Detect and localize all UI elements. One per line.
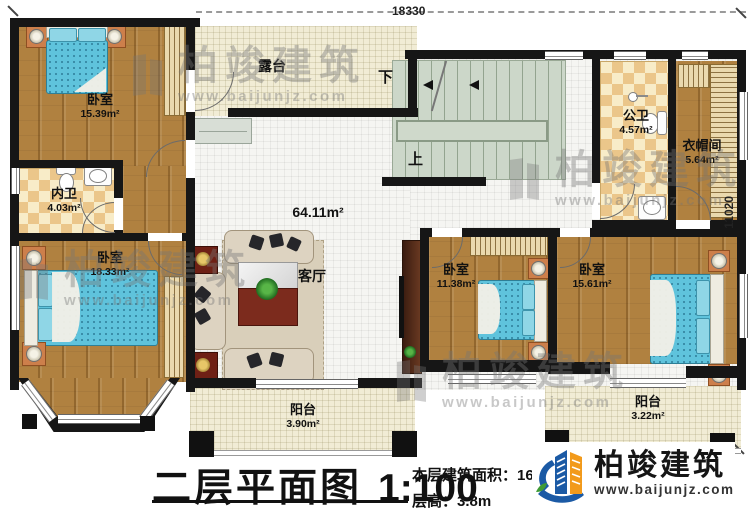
wall: [358, 378, 422, 388]
room-area: 4.57m²: [619, 124, 652, 137]
door-opening: [432, 228, 462, 237]
room-label-bedroom-bl: 卧室 18.33m²: [90, 250, 129, 278]
brand-logo-icon: [532, 442, 588, 504]
window: [682, 51, 708, 60]
room-label-living: 客厅: [298, 268, 326, 285]
room-area: 5.64m²: [682, 154, 721, 167]
room-label-balcony-left: 阳台 3.90m²: [286, 402, 319, 430]
towel-bar: [636, 95, 648, 97]
room-area: 3.90m²: [286, 418, 319, 431]
dimension-tick: [735, 7, 746, 18]
window: [448, 374, 536, 384]
terrace-step: [194, 118, 252, 144]
pillow: [78, 28, 106, 42]
tv-icon: [399, 276, 404, 338]
pillow: [38, 308, 53, 341]
door-opening: [186, 70, 195, 112]
door-opening: [186, 140, 195, 178]
bed-headboard: [534, 280, 547, 342]
plant-icon: [196, 358, 210, 372]
wall: [10, 160, 122, 168]
room-label-bedroom-mid: 卧室 11.38m²: [437, 262, 476, 290]
title-underline: [152, 500, 408, 503]
room-name: 阳台: [631, 394, 664, 410]
bed-headboard: [24, 270, 38, 346]
pillow: [522, 284, 535, 310]
pillow: [38, 274, 53, 307]
room-area: 11.38m²: [437, 278, 476, 291]
door-opening: [148, 233, 182, 241]
door-opening: [676, 220, 710, 229]
balcony-railing: [190, 450, 415, 456]
room-name: 露台: [258, 58, 286, 75]
wall: [548, 228, 557, 368]
lamp-icon: [531, 345, 546, 360]
pillow: [696, 280, 710, 316]
wall: [686, 366, 746, 378]
pillow: [696, 318, 710, 354]
window: [11, 168, 20, 194]
dimension-right: 11020: [722, 196, 736, 229]
lamp-icon: [26, 250, 42, 266]
bay-post-left: [22, 414, 37, 429]
plant-icon: [404, 346, 416, 358]
door-opening: [560, 228, 590, 237]
room-name: 公卫: [619, 108, 652, 124]
wall: [10, 18, 200, 27]
lamp-icon: [29, 29, 44, 44]
plant-icon: [256, 278, 278, 300]
sink-icon: [89, 169, 107, 183]
door-opening: [592, 183, 600, 219]
lamp-icon: [26, 346, 42, 362]
room-area: 4.03m²: [47, 202, 80, 215]
sliding-door: [256, 379, 358, 389]
stair-landing-rail: [396, 120, 548, 142]
window: [739, 92, 748, 160]
wall: [592, 59, 600, 185]
room-area: 15.39m²: [80, 108, 119, 121]
stair-direction-arrow: [418, 80, 433, 90]
window: [545, 51, 583, 60]
pillow: [49, 28, 77, 42]
room-area: 15.61m²: [572, 278, 611, 291]
wardrobe: [470, 234, 548, 256]
roof-dashed-line: [196, 11, 746, 13]
wall: [10, 18, 19, 390]
wardrobe: [164, 26, 186, 116]
toilet-tank: [657, 111, 667, 135]
bed-blanket-fold: [650, 280, 676, 356]
room-label-bedroom-br: 卧室 15.61m²: [572, 262, 611, 290]
window: [11, 246, 20, 330]
room-label-inner-bath: 内卫 4.03m²: [47, 186, 80, 214]
plant-icon: [196, 252, 210, 266]
pillow: [522, 310, 535, 336]
window: [614, 51, 646, 60]
brand-logo: 柏竣建筑 www.baijunjz.com: [532, 442, 735, 504]
lamp-icon: [107, 29, 122, 44]
stair-down-label: 下: [378, 66, 393, 87]
room-name: 卧室: [437, 262, 476, 278]
room-name: 卧室: [90, 250, 129, 266]
column: [392, 431, 417, 457]
room-name: 卧室: [80, 92, 119, 108]
brand-logo-text: 柏竣建筑 www.baijunjz.com: [594, 449, 735, 497]
room-label-bedroom-tl: 卧室 15.39m²: [80, 92, 119, 120]
wall: [420, 228, 429, 368]
stair-direction-arrow: [464, 80, 479, 90]
window: [739, 274, 748, 338]
wall: [382, 177, 486, 186]
room-label-terrace: 露台: [258, 58, 286, 75]
bed-headboard: [710, 274, 724, 364]
bed-blanket-fold: [478, 284, 500, 334]
bay-post-right: [140, 416, 155, 431]
wall: [186, 378, 256, 388]
room-label-public-bath: 公卫 4.57m²: [619, 108, 652, 136]
wardrobe: [164, 276, 184, 378]
plan-title: 二层平面图: [152, 457, 362, 513]
room-area: 3.22m²: [631, 410, 664, 423]
bed-blanket-fold: [52, 272, 80, 342]
room-name: 内卫: [47, 186, 80, 202]
wardrobe: [678, 64, 710, 88]
wall: [408, 50, 417, 116]
stair-up-label: 上: [408, 148, 423, 169]
wall: [228, 108, 418, 117]
room-area: 18.33m²: [90, 266, 129, 279]
room-label-balcony-right: 阳台 3.22m²: [631, 394, 664, 422]
hall-area-label: 64.11m²: [292, 204, 343, 220]
lamp-icon: [711, 253, 727, 269]
sofa-left: [190, 272, 226, 350]
towel-ring-icon: [628, 92, 638, 102]
wall: [420, 360, 554, 372]
sink-icon: [643, 200, 661, 215]
dimension-tick: [7, 5, 18, 16]
lamp-icon: [531, 261, 546, 276]
room-name: 衣帽间: [682, 138, 721, 154]
bay-window-glass-bottom: [58, 414, 140, 424]
room-name: 阳台: [286, 402, 319, 418]
room-name: 客厅: [298, 268, 326, 285]
column: [189, 431, 214, 457]
window: [610, 378, 686, 388]
wall: [548, 362, 610, 374]
door-opening: [114, 198, 123, 230]
floor-plan-page: 卧室 15.39m² 内卫 4.03m² 卧室 18.33m² 露台 64.11…: [0, 0, 750, 513]
wall: [668, 59, 676, 229]
room-label-cloakroom: 衣帽间 5.64m²: [682, 138, 721, 166]
dimension-top: 18330: [392, 4, 425, 18]
room-name: 卧室: [572, 262, 611, 278]
brand-name: 柏竣建筑: [594, 449, 735, 482]
sofa-pillow: [269, 233, 284, 248]
brand-url: www.baijunjz.com: [594, 482, 735, 497]
